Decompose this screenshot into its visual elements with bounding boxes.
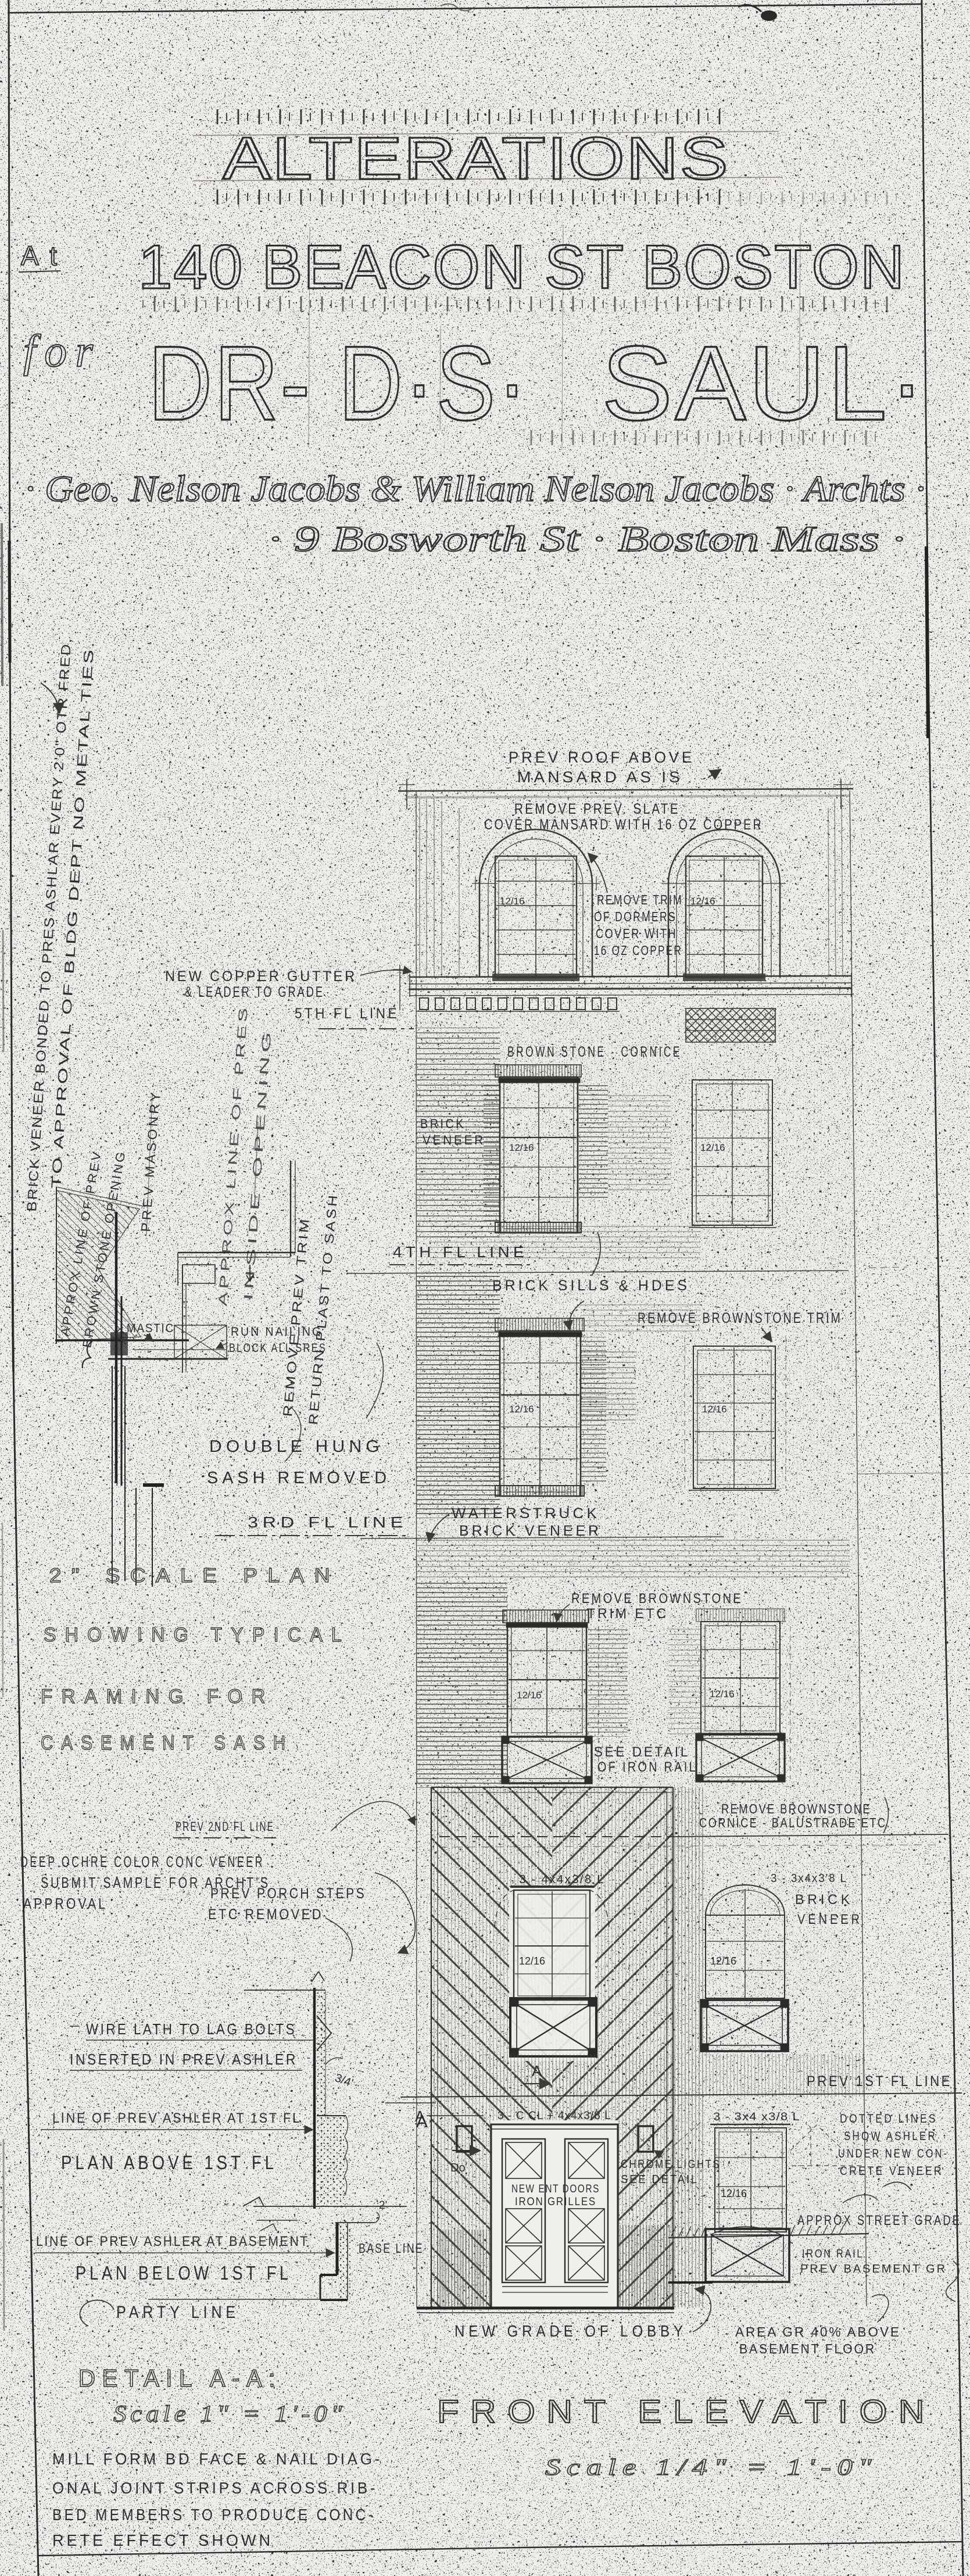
svg-text:5TH FL LINE: 5TH FL LINE [295, 1006, 399, 1022]
svg-text:Do: Do [450, 2162, 466, 2174]
svg-text:DEEP OCHRE COLOR CONC VENEER: DEEP OCHRE COLOR CONC VENEER [20, 1853, 264, 1870]
svg-text:VENEER: VENEER [423, 1133, 485, 1147]
svg-text:4TH FL LINE: 4TH FL LINE [393, 1243, 528, 1261]
svg-text:BRICK VENEER: BRICK VENEER [459, 1523, 602, 1539]
svg-text:IRON GRILLES: IRON GRILLES [515, 2196, 596, 2208]
svg-text:FRAMING FOR: FRAMING FOR [41, 1686, 274, 1708]
svg-text:2': 2' [379, 2199, 387, 2212]
svg-text:SAUL·: SAUL· [602, 324, 927, 442]
svg-text:MILL FORM BD FACE & NAIL DIAG-: MILL FORM BD FACE & NAIL DIAG- [52, 2450, 382, 2468]
svg-text:PLAN BELOW 1ST FL: PLAN BELOW 1ST FL [76, 2262, 292, 2284]
svg-text:BED MEMBERS TO PRODUCE CONC-: BED MEMBERS TO PRODUCE CONC- [52, 2506, 375, 2524]
svg-text:PLAN ABOVE 1ST FL: PLAN ABOVE 1ST FL [61, 2152, 277, 2173]
svg-text:· Geo. Nelson Jacobs & William: · Geo. Nelson Jacobs & William Nelson Ja… [25, 468, 925, 509]
svg-text:12/16: 12/16 [710, 1688, 735, 1700]
svg-text:16 OZ COPPER: 16 OZ COPPER [594, 943, 682, 958]
svg-text:Scale 1" = 1'-0": Scale 1" = 1'-0" [113, 2400, 346, 2427]
svg-text:NEW GRADE OF LOBBY: NEW GRADE OF LOBBY [454, 2322, 687, 2340]
svg-text:3 - 3x4x3'8 L: 3 - 3x4x3'8 L [771, 1872, 847, 1885]
svg-text:CRETE VENEER: CRETE VENEER [840, 2164, 943, 2178]
svg-text:PREV PORCH STEPS: PREV PORCH STEPS [210, 1886, 366, 1902]
svg-text:BROWN STONE · CORNICE: BROWN STONE · CORNICE [507, 1044, 682, 1060]
svg-text:MANSARD AS IS: MANSARD AS IS [517, 768, 683, 786]
svg-text:CASEMENT SASH: CASEMENT SASH [41, 1732, 293, 1754]
svg-text:12/16: 12/16 [710, 1955, 736, 1967]
svg-text:12/16: 12/16 [690, 896, 715, 907]
svg-text:12/16: 12/16 [500, 896, 525, 907]
svg-text:3 - C CL + 4x4x3/8 L: 3 - C CL + 4x4x3/8 L [497, 2110, 611, 2122]
svg-text:BRICK SILLS & HDES: BRICK SILLS & HDES [492, 1278, 690, 1294]
svg-text:COVER WITH: COVER WITH [596, 926, 677, 941]
svg-text:SHOWING TYPICAL: SHOWING TYPICAL [44, 1624, 350, 1646]
svg-text:WIRE LATH TO LAG BOLTS: WIRE LATH TO LAG BOLTS [86, 2020, 296, 2038]
svg-text:CHROME LIGHTS: CHROME LIGHTS [621, 2158, 721, 2171]
svg-text:PREV BASEMENT GR: PREV BASEMENT GR [800, 2263, 947, 2276]
svg-text:NEW ENT DOORS: NEW ENT DOORS [511, 2183, 600, 2195]
svg-text:3RD FL LINE: 3RD FL LINE [248, 1514, 407, 1531]
svg-text:BASE LINE: BASE LINE [359, 2241, 424, 2256]
svg-text:NEW COPPER GUTTER: NEW COPPER GUTTER [165, 968, 357, 985]
svg-text:12/16: 12/16 [721, 2188, 747, 2199]
svg-text:SEE DETAIL: SEE DETAIL [621, 2173, 699, 2186]
svg-text:OF DORMERS: OF DORMERS [594, 909, 677, 924]
svg-text:2" SCALE PLAN: 2" SCALE PLAN [49, 1565, 340, 1587]
svg-text:REMOVE BROWNSTONE TRIM: REMOVE BROWNSTONE TRIM [638, 1310, 842, 1326]
svg-text:12/16: 12/16 [519, 1955, 545, 1967]
svg-text:for: for [23, 325, 94, 376]
svg-text:DOUBLE HUNG: DOUBLE HUNG [209, 1437, 384, 1456]
svg-text:ONAL JOINT STRIPS ACROSS RIB-: ONAL JOINT STRIPS ACROSS RIB- [52, 2479, 378, 2497]
svg-text:BLOCK ALL SRES: BLOCK ALL SRES [229, 1341, 327, 1355]
svg-text:BRICK: BRICK [420, 1117, 466, 1131]
svg-text:& LEADER TO GRADE: & LEADER TO GRADE [185, 984, 324, 1000]
svg-text:TRIM ETC: TRIM ETC [587, 1606, 668, 1622]
svg-text:DOTTED LINES: DOTTED LINES [840, 2112, 937, 2126]
svg-text:12/16: 12/16 [700, 1142, 725, 1153]
svg-text:BRICK: BRICK [795, 1892, 853, 1908]
svg-text:3 - 3x4 x3/8 L: 3 - 3x4 x3/8 L [713, 2111, 800, 2123]
svg-text:RUN NAILING: RUN NAILING [231, 1325, 323, 1339]
svg-text:REMOVE BROWNSTONE: REMOVE BROWNSTONE [721, 1801, 871, 1816]
svg-text:140 BEACON ST BOSTON: 140 BEACON ST BOSTON [138, 232, 905, 302]
svg-text:FRONT ELEVATION: FRONT ELEVATION [437, 2393, 936, 2430]
svg-text:APPROX STREET GRADE: APPROX STREET GRADE [797, 2213, 961, 2228]
svg-text:BASEMENT FLOOR: BASEMENT FLOOR [739, 2341, 876, 2356]
svg-text:12/16: 12/16 [509, 1142, 534, 1153]
svg-text:REMOVE PREV. SLATE: REMOVE PREV. SLATE [514, 801, 680, 817]
svg-text:PARTY LINE: PARTY LINE [116, 2303, 239, 2322]
svg-text:REMOVE BROWNSTONE: REMOVE BROWNSTONE [571, 1591, 743, 1607]
svg-text:12/16: 12/16 [517, 1690, 542, 1701]
svg-text:OF IRON RAIL: OF IRON RAIL [597, 1759, 697, 1775]
svg-text:SHOW ASHLER: SHOW ASHLER [844, 2130, 937, 2143]
svg-text:REMOVE TRIM: REMOVE TRIM [597, 892, 683, 907]
svg-text:APPROVAL: APPROVAL [23, 1895, 108, 1912]
svg-text:AREA GR 40% ABOVE: AREA GR 40% ABOVE [735, 2324, 901, 2339]
svg-text:A: A [416, 2112, 428, 2131]
svg-text:CORNICE - BALUSTRADE ETC.: CORNICE - BALUSTRADE ETC. [699, 1815, 891, 1830]
svg-text:PREV ROOF ABOVE: PREV ROOF ABOVE [509, 749, 695, 766]
svg-text:3 - 4x4x3/8 L: 3 - 4x4x3/8 L [519, 1873, 605, 1886]
svg-text:DR- D·S·: DR- D·S· [148, 324, 529, 442]
svg-text:IRON RAIL: IRON RAIL [802, 2248, 864, 2260]
svg-text:Scale 1/4" = 1'-0": Scale 1/4" = 1'-0" [545, 2454, 878, 2480]
svg-text:WATERSTRUCK: WATERSTRUCK [452, 1505, 600, 1522]
svg-text:VENEER: VENEER [797, 1912, 862, 1927]
svg-text:· 9 Bosworth St · Boston Mass: · 9 Bosworth St · Boston Mass · [269, 520, 905, 559]
svg-text:LINE OF PREV ASHLER AT BASEMEN: LINE OF PREV ASHLER AT BASEMENT [36, 2234, 309, 2249]
svg-text:RETE EFFECT SHOWN: RETE EFFECT SHOWN [52, 2531, 273, 2549]
svg-text:12/16: 12/16 [509, 1404, 534, 1415]
svg-text:ETC REMOVED: ETC REMOVED [208, 1906, 323, 1923]
svg-text:LINE OF PREV ASHLER AT 1ST FL: LINE OF PREV ASHLER AT 1ST FL [52, 2110, 301, 2126]
svg-text:SASH REMOVED: SASH REMOVED [207, 1469, 391, 1487]
svg-text:MASTIC: MASTIC [127, 1322, 174, 1335]
svg-text:12/16: 12/16 [702, 1404, 727, 1415]
svg-text:PREV 2ND FL LINE: PREV 2ND FL LINE [176, 1819, 274, 1834]
svg-text:PREV 1ST FL LINE: PREV 1ST FL LINE [807, 2073, 952, 2090]
svg-text:INSERTED IN PREV ASHLER: INSERTED IN PREV ASHLER [70, 2051, 298, 2068]
svg-text:DETAIL A-A:: DETAIL A-A: [78, 2364, 282, 2392]
svg-text:SEE DETAIL: SEE DETAIL [594, 1744, 690, 1760]
svg-text:ALTERATIONS: ALTERATIONS [223, 125, 729, 192]
svg-text:UNDER NEW CON-: UNDER NEW CON- [838, 2147, 948, 2160]
